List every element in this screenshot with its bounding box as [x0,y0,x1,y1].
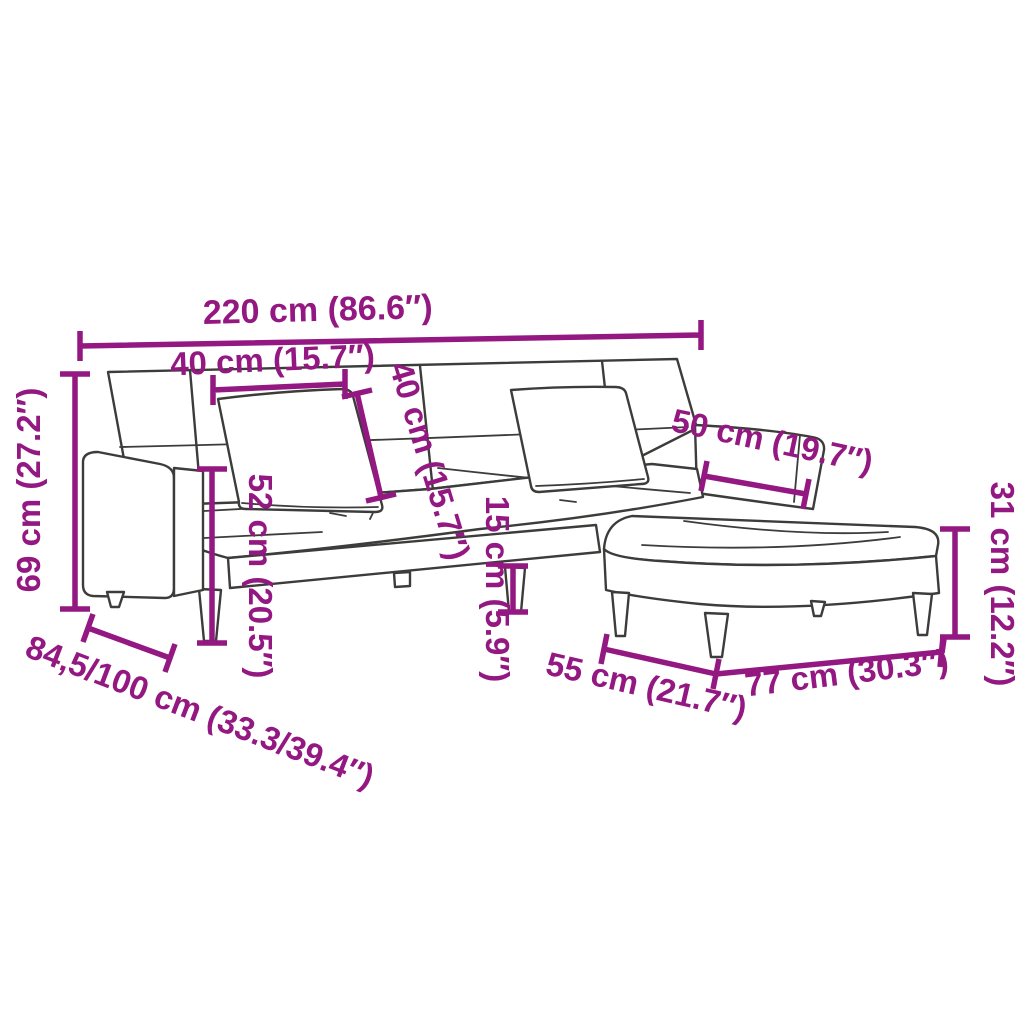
footstool-drawing [604,516,939,657]
footstool-top [604,516,938,565]
dimension-diagram-canvas: 220 cm (86.6″) 40 cm (15.7″) 40 cm (15.7… [0,0,1024,1024]
dimension-label: 69 cm (27.2″) [10,388,47,593]
dimension-label: 77 cm (30.3″) [743,642,951,704]
dimension-label: 31 cm (12.2″) [984,482,1021,687]
left-armrest-inner-face [174,468,203,596]
footstool-leg-left [612,592,629,636]
left-armrest-outer [83,452,174,598]
dimension-overall-height: 69 cm (27.2″) [10,374,90,609]
dimension-line [940,529,970,653]
footstool-leg-right [913,593,932,635]
dimension-diagram-page: 220 cm (86.6″) 40 cm (15.7″) 40 cm (15.7… [0,0,1024,1024]
sofa-frame-clip [394,572,410,587]
dimension-footstool-width: 77 cm (30.3″) [716,637,950,703]
dimension-label: 84,5/100 cm (33.3/39.4″) [21,628,380,795]
footstool-leg-front [705,613,728,657]
dimension-label: 220 cm (86.6″) [202,288,433,332]
dimension-label: 52 cm (20.5″) [242,474,279,679]
pillow-right [511,387,648,492]
dimension-label: 15 cm (5.9″) [479,496,516,682]
footstool-leg-back [811,601,825,616]
dimension-footstool-height: 31 cm (12.2″) [940,482,1021,687]
sofa-leg-armrest [107,592,124,607]
